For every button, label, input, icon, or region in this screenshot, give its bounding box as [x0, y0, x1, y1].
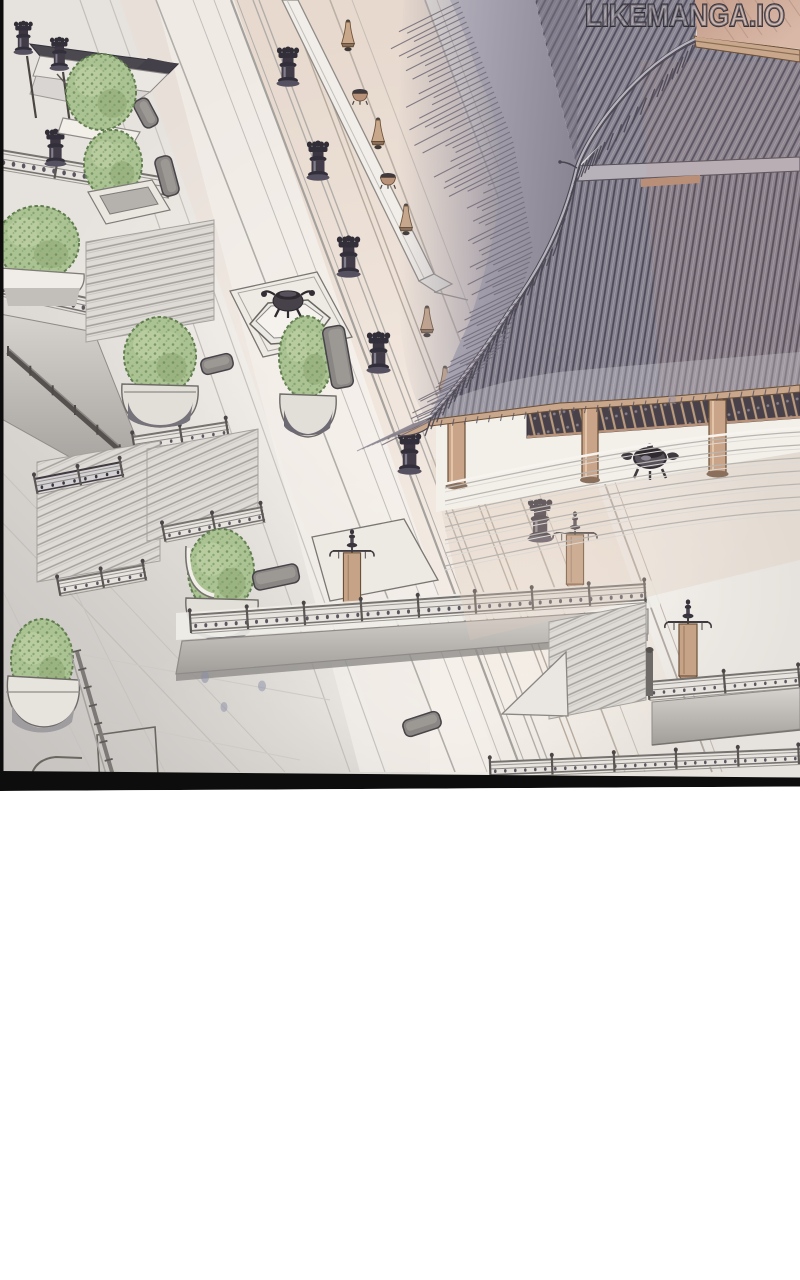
svg-text:LIKEMANGA.IO: LIKEMANGA.IO [585, 0, 785, 33]
